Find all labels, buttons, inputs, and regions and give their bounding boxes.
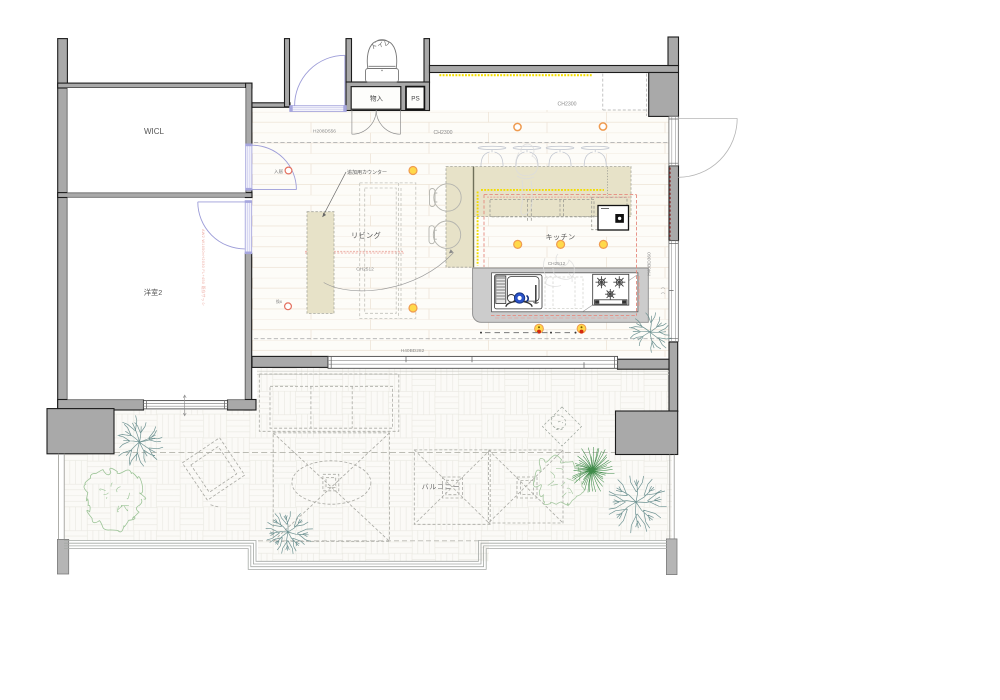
svg-text:物入: 物入	[370, 94, 384, 103]
svg-text:リビング: リビング	[351, 231, 381, 240]
svg-text:H40BD360: H40BD360	[647, 252, 653, 276]
svg-text:WICL: WICL	[144, 127, 165, 136]
svg-text:追加用カウンター: 追加用カウンター	[347, 169, 387, 176]
svg-text:AW2 W1650×H2030 FL+450 既存サッシ: AW2 W1650×H2030 FL+450 既存サッシ	[201, 229, 206, 306]
svg-text:H208D556: H208D556	[313, 129, 336, 135]
svg-text:CH2300: CH2300	[557, 102, 576, 108]
svg-text:キッチン: キッチン	[546, 232, 576, 241]
svg-text:洋室2: 洋室2	[144, 288, 162, 297]
svg-text:CH2512: CH2512	[548, 261, 566, 267]
svg-text:換6: 換6	[276, 298, 283, 304]
svg-text:CH2512: CH2512	[356, 267, 374, 273]
svg-text:CH2300: CH2300	[433, 130, 452, 136]
svg-text:PS: PS	[411, 96, 419, 103]
svg-text:H40BD282: H40BD282	[401, 348, 425, 354]
